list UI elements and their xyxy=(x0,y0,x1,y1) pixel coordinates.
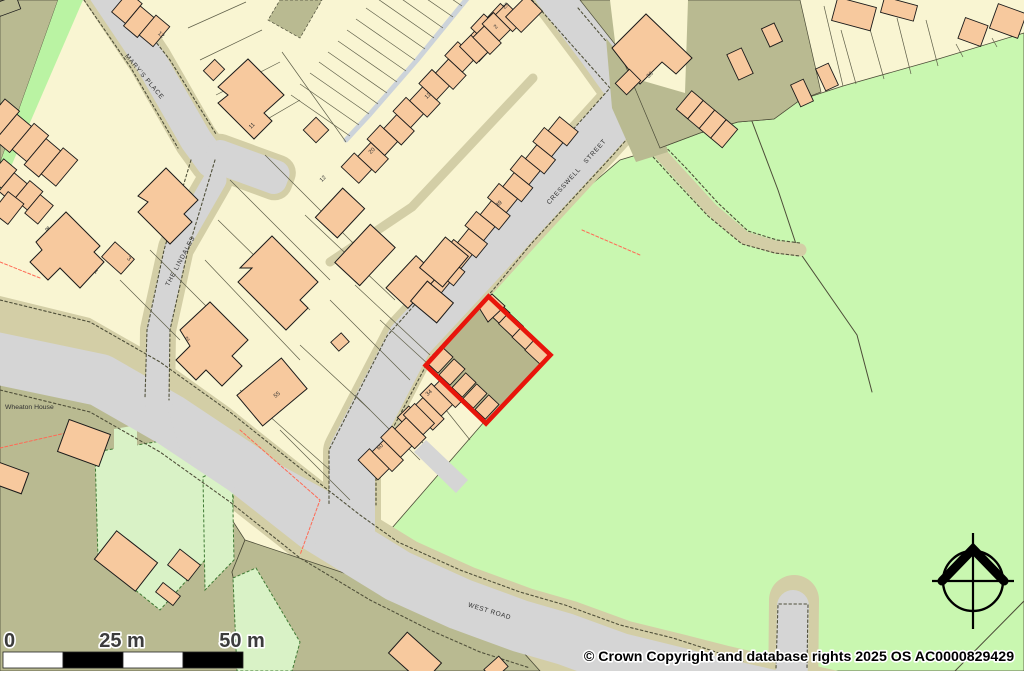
svg-text:Wheaton House: Wheaton House xyxy=(5,404,54,411)
svg-text:© Crown Copyright and database: © Crown Copyright and database rights 20… xyxy=(584,649,1014,665)
svg-text:50 m: 50 m xyxy=(219,630,265,652)
svg-text:0: 0 xyxy=(4,630,15,652)
svg-text:25 m: 25 m xyxy=(99,630,145,652)
